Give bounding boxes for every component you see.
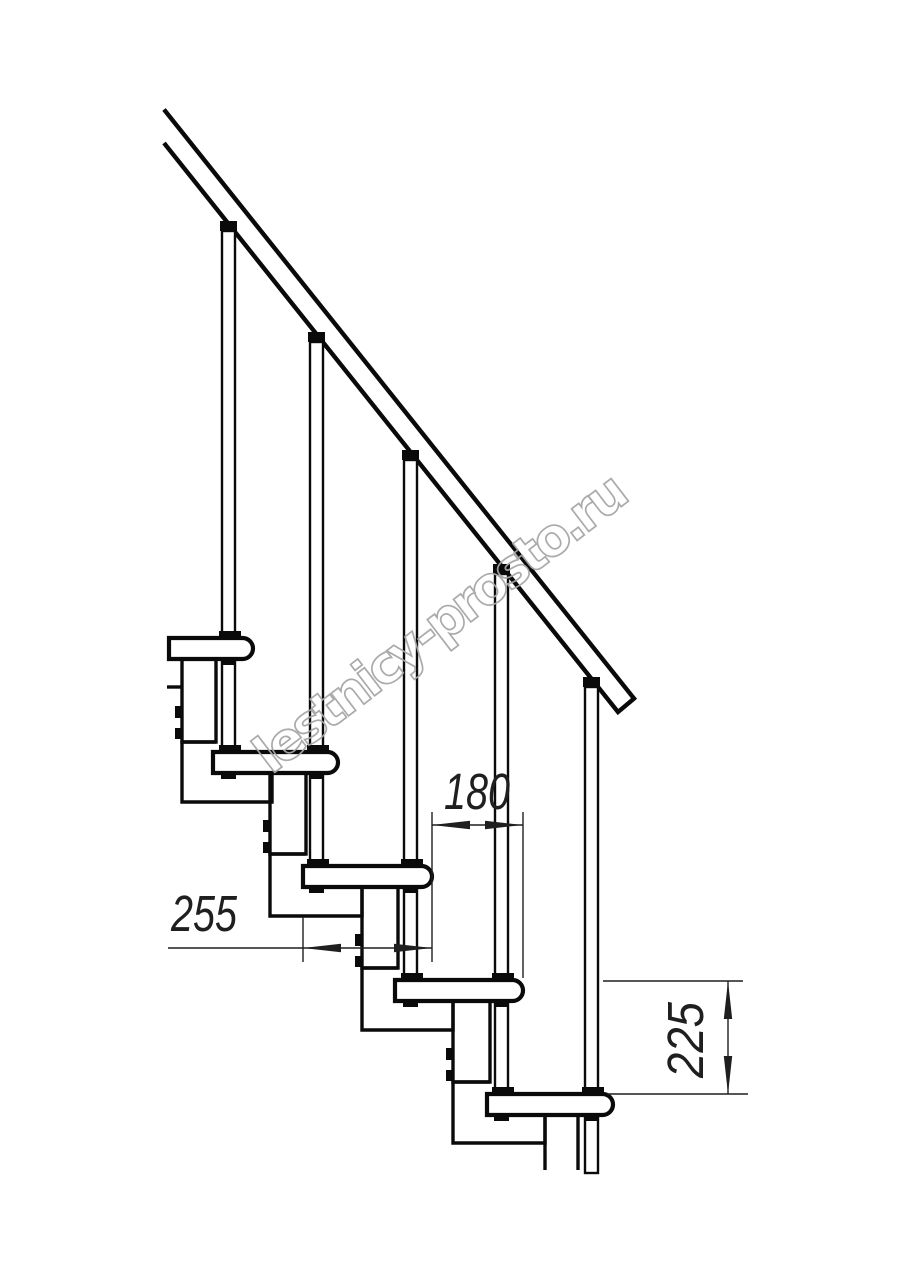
arrow-left: [303, 944, 341, 952]
column-bolt: [446, 1070, 453, 1081]
arrow-left: [432, 821, 470, 829]
tread-5: [487, 1094, 613, 1115]
column-2-upper: [270, 773, 306, 854]
tread-bolt: [309, 887, 324, 893]
tread-flange: [492, 973, 514, 980]
column-3-upper: [362, 887, 398, 968]
tread-1: [169, 638, 253, 659]
tread-3: [303, 866, 432, 887]
tread-bolt: [494, 1115, 509, 1121]
tread-flange: [219, 631, 241, 638]
baluster-4: [495, 574, 508, 1094]
column-bolt: [263, 820, 270, 832]
tread-bolt: [221, 773, 236, 779]
staircase-technical-drawing: 255 180 225 lestnicy-prosto.ru: [0, 0, 914, 1280]
arrow-up: [724, 981, 732, 1019]
dimension-label-255: 255: [170, 885, 237, 942]
baluster-1: [222, 231, 235, 752]
dimension-step-run: 180: [432, 763, 523, 978]
tread-bolt: [494, 1001, 509, 1007]
tread-flange: [401, 859, 423, 866]
column-bolt: [263, 842, 270, 853]
rail-flange: [402, 450, 419, 460]
column-bolt: [446, 1048, 453, 1060]
column-4-upper: [453, 1001, 490, 1082]
staircase-drawing-page: 255 180 225 lestnicy-prosto.ru: [0, 0, 914, 1280]
dimension-step-rise: 225: [603, 981, 748, 1094]
column-bolt: [175, 728, 182, 739]
rail-flange: [220, 221, 237, 231]
tread-flange: [582, 1087, 604, 1094]
baluster-2: [310, 342, 323, 866]
tread-flange: [401, 973, 423, 980]
tread-flange: [492, 1087, 514, 1094]
baluster-3: [404, 460, 417, 980]
tread-bolt: [584, 1115, 599, 1121]
dimension-label-180: 180: [444, 763, 510, 820]
tread-bolt: [403, 1001, 418, 1007]
dimension-label-225: 225: [657, 1001, 714, 1078]
tread-bolt: [403, 887, 418, 893]
column-1-upper: [182, 659, 216, 742]
tread-4: [395, 980, 523, 1001]
rail-flange: [308, 332, 325, 342]
column-bolt: [355, 956, 362, 967]
tread-bolt: [309, 773, 324, 779]
column-bolt: [355, 934, 362, 946]
column-bolt: [175, 706, 182, 718]
tread-flange: [219, 745, 241, 752]
tread-bolt: [221, 659, 236, 665]
rail-flange: [583, 677, 600, 687]
arrow-down: [724, 1056, 732, 1094]
tread-flange: [307, 859, 329, 866]
